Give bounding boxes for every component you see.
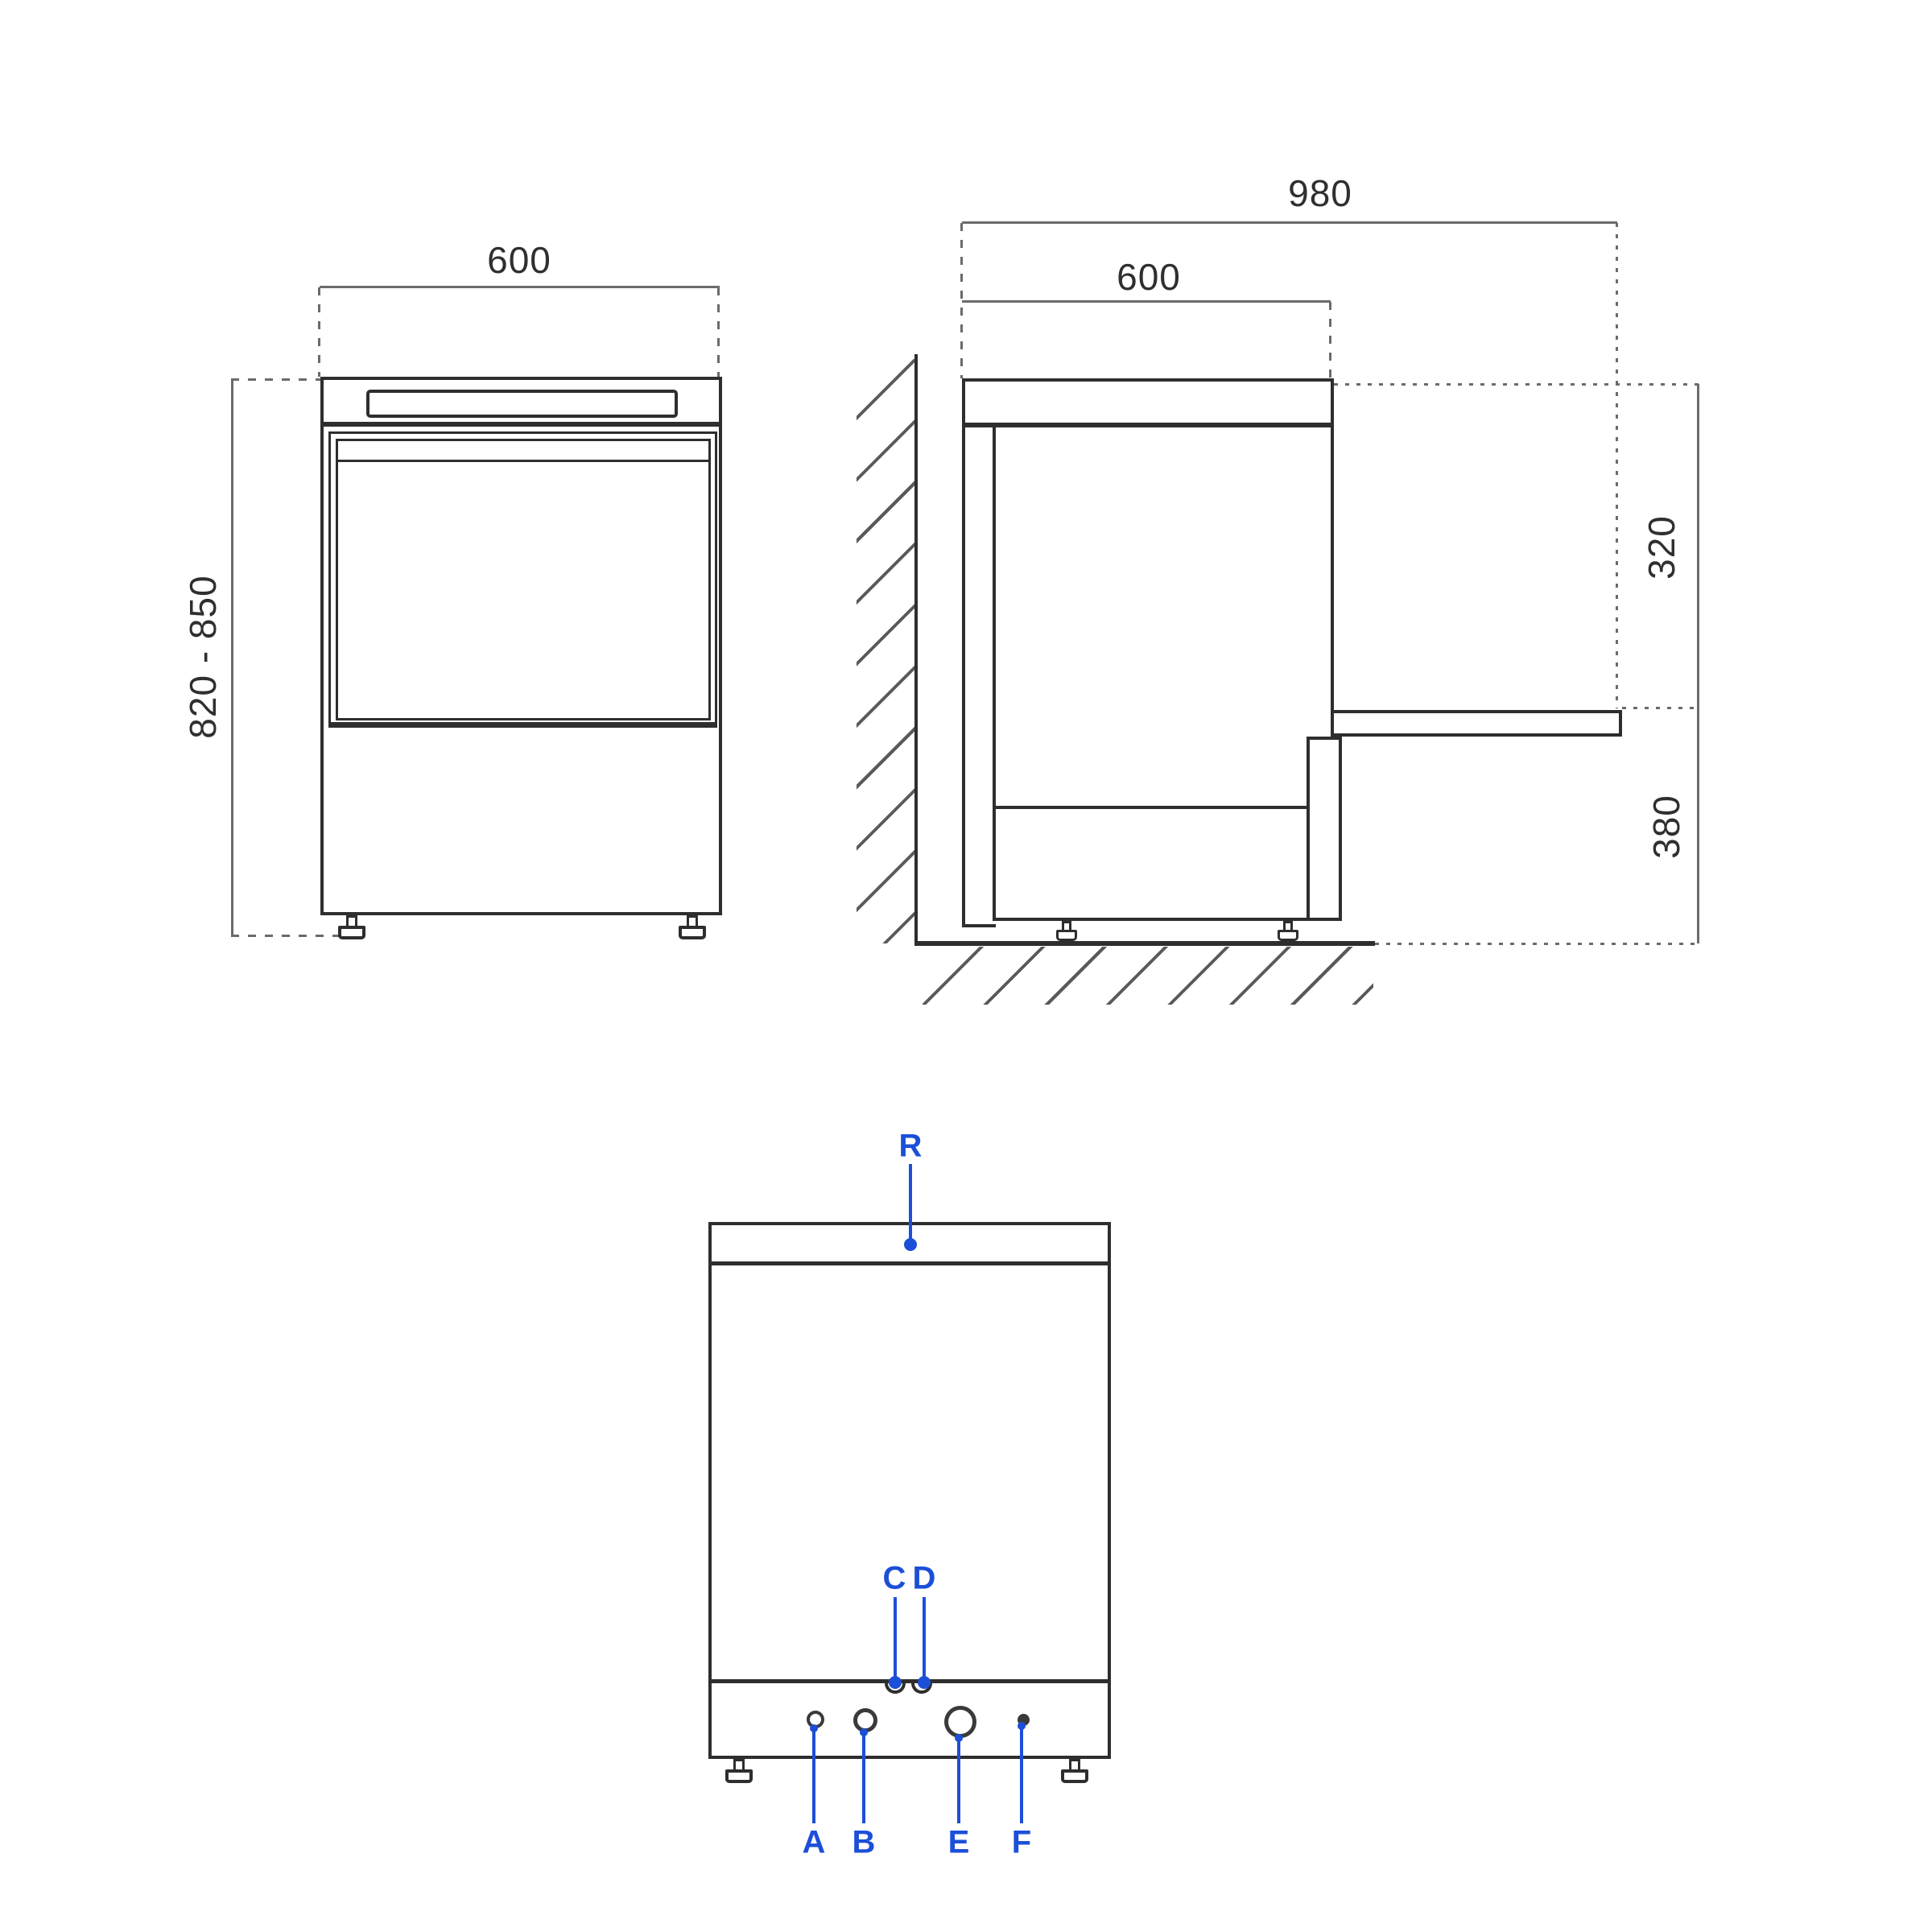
connection-point-r	[904, 1238, 917, 1251]
foot-stem	[733, 1759, 745, 1769]
rear-body-outline	[708, 1222, 1111, 1759]
connection-leader-d	[923, 1597, 926, 1682]
connection-point-d	[918, 1676, 931, 1689]
rear-top-divider	[708, 1261, 1111, 1265]
connection-label-r: R	[899, 1129, 923, 1165]
connection-label-d: D	[913, 1561, 936, 1597]
foot-stem	[1069, 1759, 1080, 1769]
connection-leader-a	[812, 1728, 815, 1823]
connection-point-c	[889, 1676, 902, 1689]
connection-label-a: A	[803, 1825, 826, 1861]
connection-label-b: B	[852, 1825, 876, 1861]
connection-leader-c	[894, 1597, 897, 1682]
foot-pad	[725, 1769, 753, 1783]
connection-label-e: E	[948, 1825, 970, 1861]
technical-drawing-canvas: 600 820 - 850 980 600	[0, 0, 1932, 1932]
connection-leader-r	[909, 1164, 912, 1243]
rear-left-foot	[723, 1759, 755, 1783]
connection-label-c: C	[883, 1561, 906, 1597]
connection-leader-b	[862, 1732, 865, 1823]
connection-leader-f	[1020, 1726, 1023, 1823]
rear-right-foot	[1059, 1759, 1091, 1783]
rear-view: R C D A B E F	[0, 0, 1932, 1932]
port-e	[944, 1706, 976, 1738]
foot-pad	[1061, 1769, 1088, 1783]
connection-leader-e	[957, 1738, 960, 1823]
rear-bottom-divider	[708, 1679, 1111, 1683]
connection-label-f: F	[1012, 1825, 1031, 1861]
